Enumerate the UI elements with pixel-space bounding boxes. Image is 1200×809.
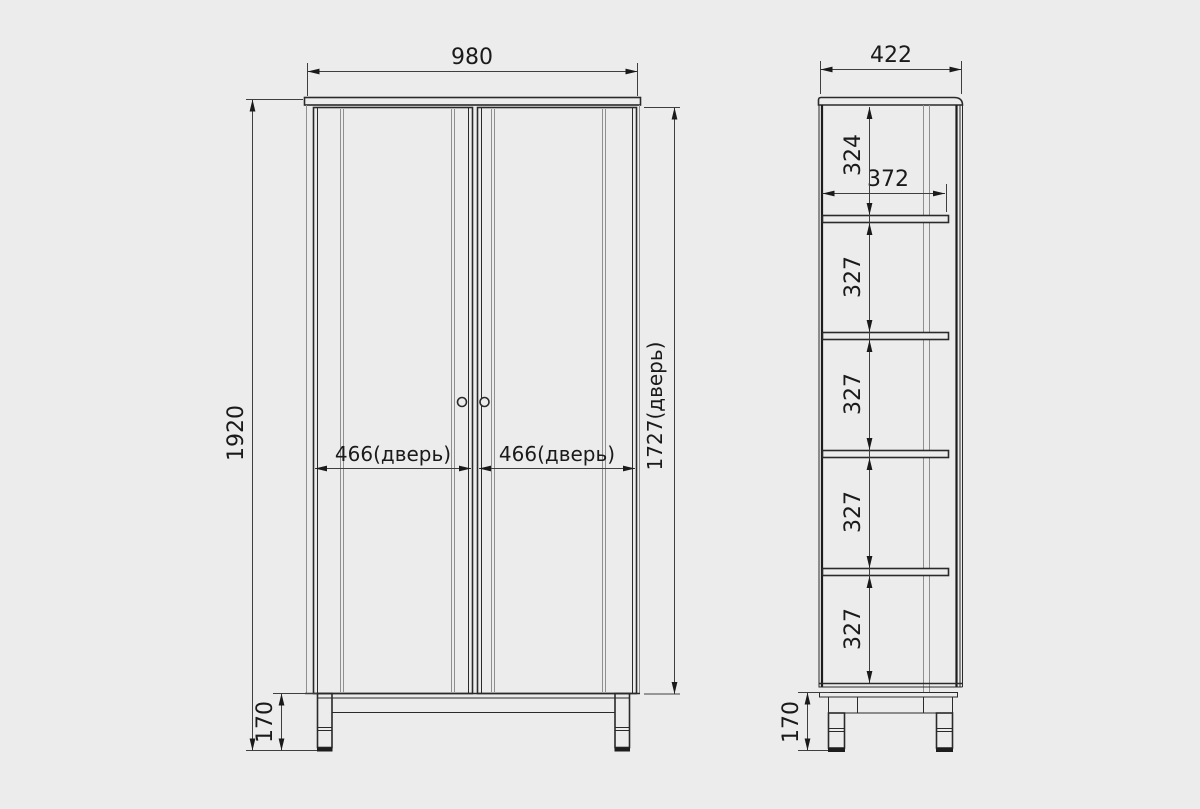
arrow-icon [867, 223, 873, 235]
technical-drawing-canvas: 980 1920 1727(дверь) 466(дверь) [0, 0, 1200, 809]
dim-label-shelf-gap-3: 327 [841, 491, 866, 533]
side-bottom-panel [819, 684, 963, 688]
arrow-icon [315, 466, 327, 472]
shelf-3 [823, 451, 949, 458]
front-right-foot-cap [615, 748, 631, 752]
arrow-icon [867, 556, 873, 568]
dim-front-width: 980 [308, 45, 638, 96]
dim-label-shelf-gap-2: 327 [841, 373, 866, 415]
dim-front-height: 1920 [224, 100, 317, 751]
dim-label-shelf-gap-1: 327 [841, 256, 866, 298]
dim-label-door-height: 1727(дверь) [643, 342, 667, 471]
cabinet-dimension-drawing: 980 1920 1727(дверь) 466(дверь) [0, 0, 1200, 809]
arrow-icon [867, 203, 873, 215]
arrow-icon [933, 191, 945, 197]
arrow-icon [867, 320, 873, 332]
shelf-2 [823, 333, 949, 340]
arrow-icon [867, 458, 873, 470]
front-view: 980 1920 1727(дверь) 466(дверь) [224, 45, 680, 752]
dim-label-left-door-width: 466(дверь) [335, 442, 451, 466]
arrow-icon [867, 438, 873, 450]
arrow-icon [867, 340, 873, 352]
dim-label-front-leg-height: 170 [253, 701, 278, 743]
arrow-icon [626, 69, 638, 75]
arrow-icon [279, 739, 285, 751]
left-door [314, 108, 473, 694]
side-back-panel [819, 105, 822, 687]
arrow-icon [867, 671, 873, 683]
arrow-icon [805, 693, 811, 705]
front-right-leg [615, 694, 630, 748]
right-door-knob [480, 398, 489, 407]
dim-side-depth: 422 [821, 43, 962, 94]
arrow-icon [623, 466, 635, 472]
dim-side-leg-height: 170 [779, 693, 830, 751]
front-base-and-legs [317, 694, 630, 752]
arrow-icon [672, 108, 678, 120]
dim-right-door-width: 466(дверь) [479, 442, 635, 471]
dim-label-right-door-width: 466(дверь) [499, 442, 615, 466]
dim-label-inner-depth: 372 [867, 167, 909, 192]
dim-label-front-width: 980 [451, 45, 493, 70]
arrow-icon [805, 739, 811, 751]
left-door-groove-lines [341, 109, 455, 692]
arrow-icon [279, 694, 285, 706]
shelf-4 [823, 569, 949, 576]
front-left-leg [318, 694, 333, 748]
side-door-edge [957, 105, 963, 687]
front-top-panel [305, 98, 641, 106]
side-top-panel [819, 98, 963, 106]
arrow-icon [867, 107, 873, 119]
dim-door-height: 1727(дверь) [643, 108, 680, 695]
dim-label-side-leg-height: 170 [779, 701, 804, 743]
side-back-foot-cap [828, 748, 845, 752]
arrow-icon [821, 67, 833, 73]
dim-left-door-width: 466(дверь) [315, 442, 471, 471]
arrow-icon [308, 69, 320, 75]
arrow-icon [459, 466, 471, 472]
front-left-foot-cap [317, 748, 333, 752]
arrow-icon [867, 576, 873, 588]
left-door-knob [458, 398, 467, 407]
dim-label-side-depth: 422 [870, 43, 912, 68]
side-base-and-legs [820, 693, 958, 753]
right-door [478, 108, 637, 694]
dim-label-shelf-gap-4: 327 [841, 608, 866, 650]
dim-front-leg-height: 170 [253, 694, 317, 751]
arrow-icon [672, 682, 678, 694]
side-back-leg [829, 713, 845, 748]
arrow-icon [950, 67, 962, 73]
dim-label-front-height: 1920 [224, 405, 249, 461]
arrow-icon [250, 100, 256, 112]
arrow-icon [479, 466, 491, 472]
dim-label-top-shelf-gap: 324 [841, 134, 866, 176]
arrow-icon [823, 191, 835, 197]
side-front-leg [937, 713, 953, 748]
side-view: 422 372 324 327 327 [779, 43, 963, 752]
shelf-1 [823, 216, 949, 223]
right-door-groove-lines [492, 109, 606, 692]
side-front-foot-cap [936, 748, 953, 752]
